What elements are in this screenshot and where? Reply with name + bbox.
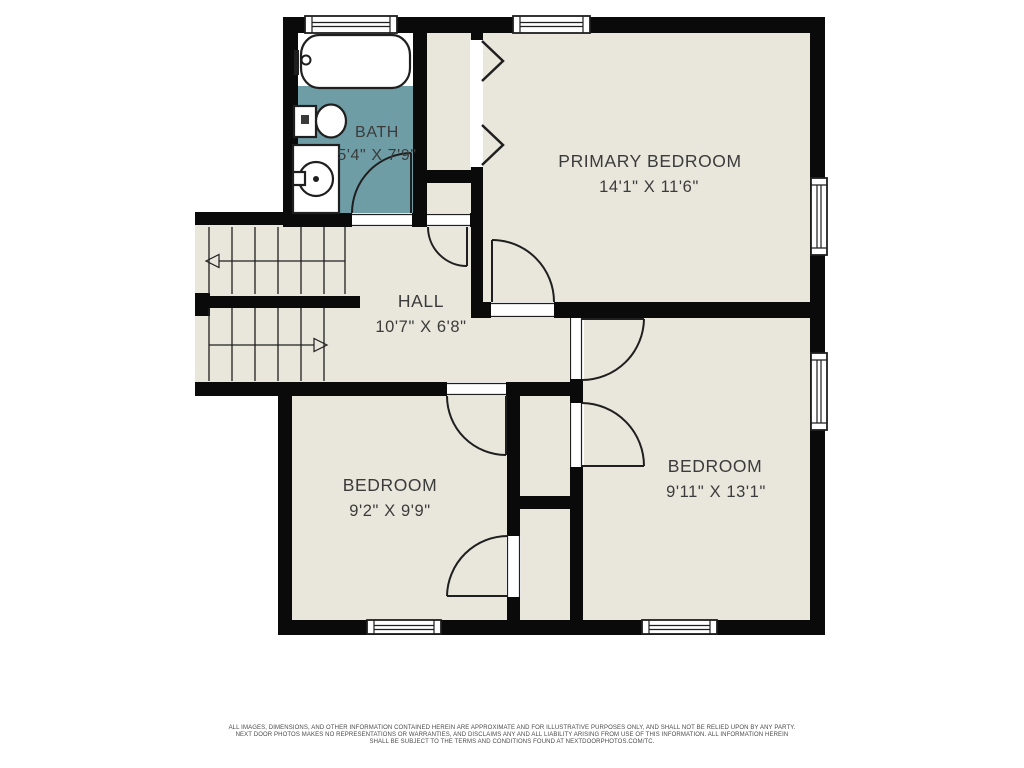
gap-closet-left [506, 536, 521, 597]
wall-closet-front-lower [471, 167, 483, 318]
hall-label: HALL [398, 291, 444, 311]
disclaimer-line-3: SHALL BE SUBJECT TO THE TERMS AND CONDIT… [0, 739, 1024, 746]
sink-vanity [293, 145, 339, 213]
floor-primary-closet [427, 33, 471, 215]
bath-dims: 5'4" X 7'9" [337, 147, 416, 164]
wall-stair-divider [210, 296, 360, 308]
window-primary-right [811, 178, 827, 255]
bath-label: BATH [355, 124, 399, 141]
wall-closet-front-stub [471, 33, 483, 40]
floor-plan-page: BATH 5'4" X 7'9" PRIMARY BEDROOM 14'1" X… [0, 0, 1024, 768]
bedroom-right-dims: 9'11" X 13'1" [666, 483, 766, 501]
primary-bedroom-label: PRIMARY BEDROOM [558, 151, 741, 171]
wall-stair-stub [195, 293, 210, 316]
wall-hall-bottom [195, 382, 583, 396]
bedroom-left-label: BEDROOM [343, 475, 438, 495]
wall-stairs-top [195, 212, 298, 225]
window-bedroom-right-bottom [642, 620, 717, 634]
threshold-primary [491, 302, 554, 318]
bedroom-left-dims: 9'2" X 9'9" [349, 502, 431, 520]
tub-faucet [294, 50, 299, 75]
wall-bedroom-left-side [278, 385, 292, 635]
hall-dims: 10'7" X 6'8" [375, 318, 466, 336]
closet-bifold-opening [470, 40, 483, 167]
bathtub [294, 35, 410, 88]
disclaimer-line-2: NEXT DOOR PHOTOS MAKES NO REPRESENTATION… [0, 732, 1024, 739]
wall-closet-col-divider [507, 496, 583, 509]
window-bath-top [305, 16, 397, 33]
wall-closet-divider-small [413, 170, 483, 183]
window-bedroom-left-bottom [367, 620, 441, 634]
primary-bedroom-dims: 14'1" X 11'6" [599, 178, 699, 196]
window-primary-top [513, 16, 590, 33]
wall-bottom [278, 620, 825, 635]
disclaimer-line-1: ALL IMAGES, DIMENSIONS, AND OTHER INFORM… [0, 725, 1024, 732]
wall-right [810, 17, 825, 635]
wall-bath-right [413, 33, 427, 227]
toilet [294, 105, 346, 138]
bedroom-right-label: BEDROOM [668, 456, 763, 476]
floor-plan: BATH 5'4" X 7'9" PRIMARY BEDROOM 14'1" X… [0, 0, 1024, 768]
disclaimer: ALL IMAGES, DIMENSIONS, AND OTHER INFORM… [0, 725, 1024, 746]
window-bedroom-right-side [811, 353, 827, 430]
